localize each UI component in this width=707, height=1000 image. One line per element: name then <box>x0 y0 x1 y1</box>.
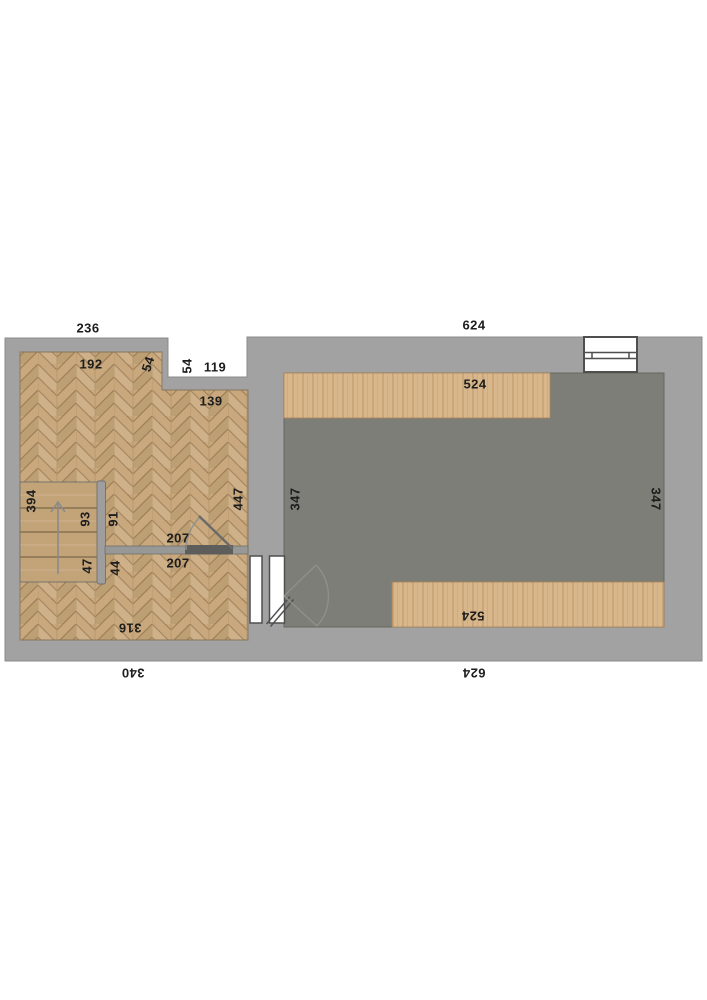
floor-plan-drawing <box>0 0 707 1000</box>
interior-wall <box>105 545 248 555</box>
stair-spine-wall <box>97 481 106 584</box>
interior-door-threshold <box>185 545 233 555</box>
bench-top <box>284 373 550 418</box>
staircase <box>20 482 98 582</box>
floor-plan: 236 624 54 119 192 54 139 394 93 47 91 4… <box>0 0 707 1000</box>
bench-bottom <box>392 582 664 627</box>
window <box>584 337 637 372</box>
